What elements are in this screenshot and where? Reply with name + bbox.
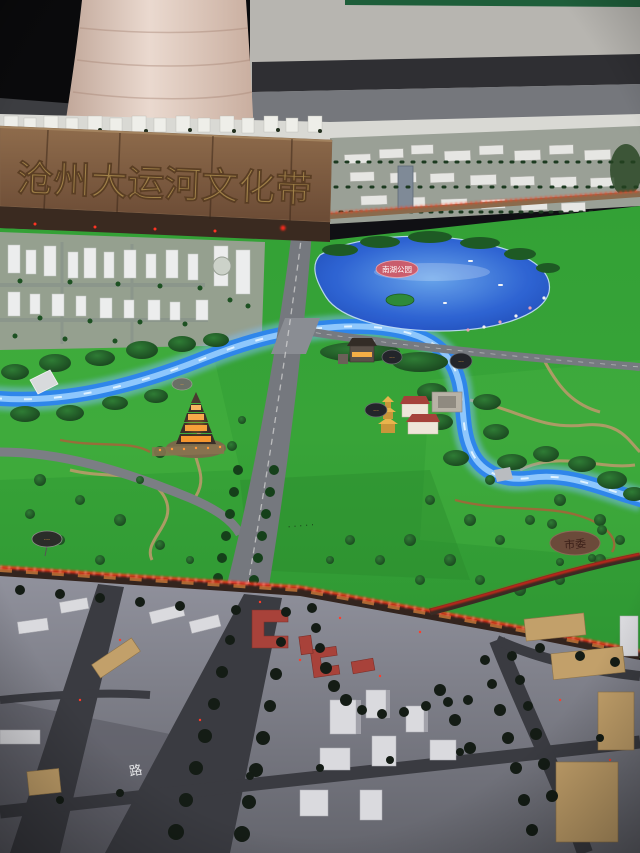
photo-vignette [0,0,640,853]
photo-of-city-model: 南湖公园 ··· ··· ·· ··· ··· 市委 ····· 路 [0,0,640,853]
model-scene: 南湖公园 ··· ··· ·· ··· ··· 市委 ····· 路 [0,0,640,853]
